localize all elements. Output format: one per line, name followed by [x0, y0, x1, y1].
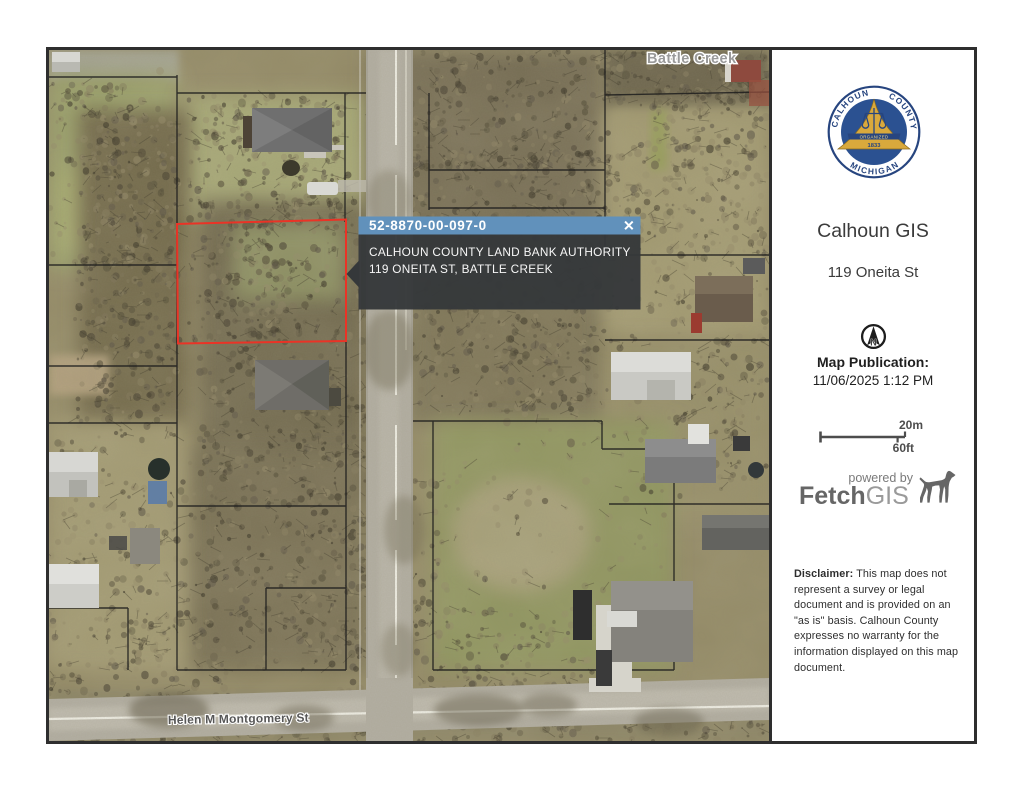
svg-text:1833: 1833 [868, 143, 882, 149]
svg-text:20m: 20m [899, 418, 923, 432]
svg-text:Battle Creek: Battle Creek [647, 51, 737, 67]
svg-text:✕: ✕ [623, 218, 635, 234]
svg-text:N: N [870, 338, 877, 348]
svg-text:FetchGIS: FetchGIS [799, 482, 909, 510]
svg-text:119 ONEITA ST, BATTLE CREEK: 119 ONEITA ST, BATTLE CREEK [369, 262, 553, 276]
svg-text:CALHOUN COUNTY LAND BANK AUTHO: CALHOUN COUNTY LAND BANK AUTHORITY [369, 245, 631, 259]
svg-text:ORGANIZED: ORGANIZED [860, 134, 889, 139]
svg-text:52-8870-00-097-0: 52-8870-00-097-0 [369, 218, 487, 233]
svg-text:Helen M Montgomery St: Helen M Montgomery St [168, 711, 309, 727]
svg-text:60ft: 60ft [893, 441, 914, 455]
